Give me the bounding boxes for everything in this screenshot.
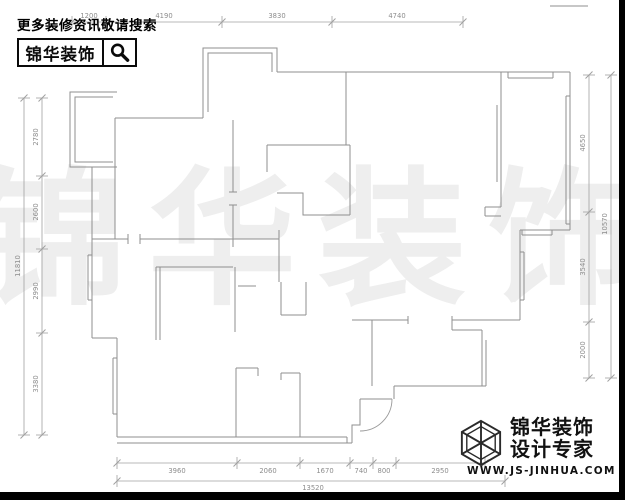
wall-segment <box>208 53 272 112</box>
dimension-label: 740 <box>355 467 368 475</box>
wall-segment <box>70 92 117 167</box>
dimension-label: 2780 <box>32 128 40 145</box>
dimension-label: 4740 <box>388 12 405 20</box>
cube-logo-icon <box>457 419 505 467</box>
dimension-label: 10570 <box>601 213 609 235</box>
dimension-label: 4650 <box>579 134 587 151</box>
dimension-row: 465035402000 <box>579 72 595 382</box>
dimension-row: 11810 <box>14 95 30 439</box>
wall-segment <box>352 399 360 443</box>
dimension-label: 3960 <box>168 467 185 475</box>
search-icon <box>102 40 135 65</box>
footer-brand-tagline: 设计专家 <box>510 439 594 461</box>
dimension-row: 13520 <box>114 475 509 492</box>
dimension-row: 3960206016707408002950 <box>114 457 489 475</box>
search-slogan: 更多装修资讯敬请搜索 <box>17 14 157 34</box>
wall-segment <box>203 48 277 112</box>
dimension-label: 2950 <box>431 467 448 475</box>
dimension-label: 2990 <box>32 282 40 299</box>
wall-segment <box>277 193 350 215</box>
dimension-label: 800 <box>378 467 391 475</box>
entry-door-arc <box>360 399 392 431</box>
dimension-label: 2600 <box>32 203 40 220</box>
right-black-bar <box>619 0 625 500</box>
floorplan-page: 锦华装饰 12004190383047403960206016707408002… <box>0 0 625 500</box>
dimension-label: 4190 <box>155 12 172 20</box>
header: 更多装修资讯敬请搜索 锦华装饰 <box>17 14 157 67</box>
footer-url: WWW.JS-JINHUA.COM <box>467 465 616 477</box>
dimension-label: 13520 <box>302 484 324 492</box>
dimension-label: 2000 <box>579 341 587 358</box>
dimension-row: 2780260029903380 <box>32 95 48 439</box>
footer-brand-text: 锦华装饰 设计专家 <box>510 417 594 461</box>
dimension-label: 2060 <box>259 467 276 475</box>
dimension-label: 3540 <box>579 258 587 275</box>
dimension-row: 10570 <box>601 72 617 382</box>
footer-brand-name: 锦华装饰 <box>510 417 594 439</box>
bottom-black-bar <box>0 492 625 500</box>
dimension-label: 11810 <box>14 255 22 277</box>
dimension-label: 3830 <box>268 12 285 20</box>
brand-name: 锦华装饰 <box>19 40 102 65</box>
dimension-label: 1670 <box>316 467 333 475</box>
dimension-label: 3380 <box>32 375 40 392</box>
wall-segment <box>75 97 113 162</box>
brand-search-box: 锦华装饰 <box>17 38 137 67</box>
